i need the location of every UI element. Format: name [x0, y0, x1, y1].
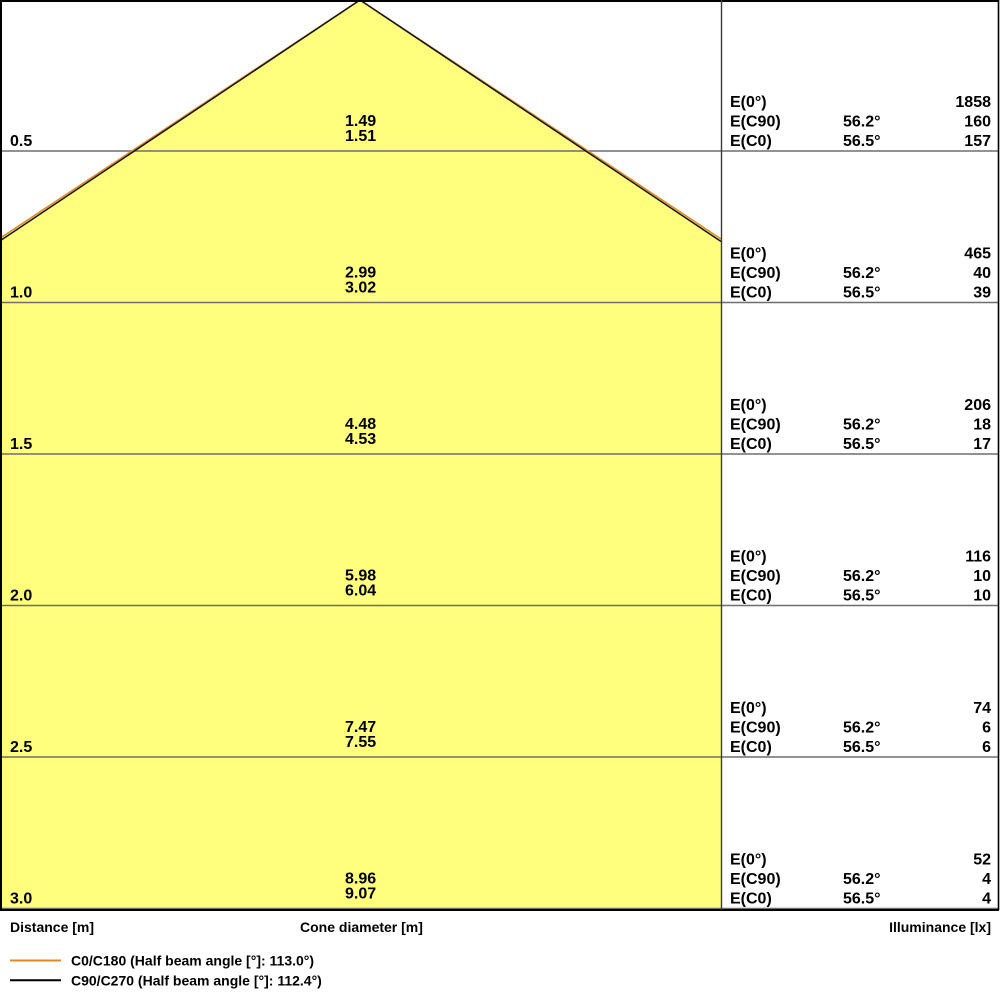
svg-text:6: 6 — [982, 739, 991, 756]
svg-text:56.2°: 56.2° — [843, 265, 881, 282]
svg-text:E(0°): E(0°) — [730, 246, 767, 263]
svg-text:E(C90): E(C90) — [730, 871, 781, 888]
svg-text:E(0°): E(0°) — [730, 549, 767, 566]
svg-text:18: 18 — [973, 417, 991, 434]
svg-text:3.02: 3.02 — [345, 280, 376, 297]
svg-text:6.04: 6.04 — [345, 583, 376, 600]
svg-text:74: 74 — [973, 700, 991, 717]
svg-text:39: 39 — [973, 285, 991, 302]
svg-text:E(C0): E(C0) — [730, 891, 772, 908]
svg-text:E(C90): E(C90) — [730, 114, 781, 131]
svg-text:4: 4 — [982, 871, 991, 888]
svg-text:56.5°: 56.5° — [843, 436, 881, 453]
svg-text:56.5°: 56.5° — [843, 285, 881, 302]
svg-text:56.5°: 56.5° — [843, 739, 881, 756]
svg-text:56.2°: 56.2° — [843, 871, 881, 888]
svg-text:10: 10 — [973, 588, 991, 605]
svg-text:C90/C270 (Half beam angle [°]:: C90/C270 (Half beam angle [°]: 112.4°) — [71, 972, 322, 988]
svg-text:E(0°): E(0°) — [730, 852, 767, 869]
svg-text:56.2°: 56.2° — [843, 568, 881, 585]
svg-text:E(C90): E(C90) — [730, 265, 781, 282]
svg-text:1.0: 1.0 — [10, 285, 32, 302]
svg-text:6: 6 — [982, 720, 991, 737]
svg-text:56.5°: 56.5° — [843, 588, 881, 605]
svg-text:56.5°: 56.5° — [843, 133, 881, 150]
svg-text:157: 157 — [964, 133, 991, 150]
svg-text:E(0°): E(0°) — [730, 397, 767, 414]
svg-text:7.55: 7.55 — [345, 734, 376, 751]
svg-text:4.53: 4.53 — [345, 431, 376, 448]
svg-text:Distance [m]: Distance [m] — [10, 919, 94, 935]
svg-text:C0/C180 (Half beam angle [°]:: C0/C180 (Half beam angle [°]: 113.0°) — [71, 953, 314, 969]
svg-text:Cone diameter [m]: Cone diameter [m] — [300, 919, 423, 935]
svg-text:52: 52 — [973, 852, 991, 869]
svg-text:E(C90): E(C90) — [730, 417, 781, 434]
svg-text:E(C90): E(C90) — [730, 568, 781, 585]
svg-text:9.07: 9.07 — [345, 886, 376, 903]
svg-text:116: 116 — [965, 549, 991, 566]
svg-text:3.0: 3.0 — [10, 891, 32, 908]
svg-text:E(C0): E(C0) — [730, 285, 772, 302]
svg-text:Illuminance [lx]: Illuminance [lx] — [889, 919, 991, 935]
svg-text:E(0°): E(0°) — [730, 94, 767, 111]
svg-text:206: 206 — [964, 397, 991, 414]
svg-text:17: 17 — [973, 436, 991, 453]
svg-text:2.0: 2.0 — [10, 588, 32, 605]
svg-text:4: 4 — [982, 891, 991, 908]
svg-text:1.51: 1.51 — [345, 128, 376, 145]
svg-text:2.5: 2.5 — [10, 739, 32, 756]
svg-text:40: 40 — [973, 265, 991, 282]
svg-text:0.5: 0.5 — [10, 133, 32, 150]
svg-text:E(C0): E(C0) — [730, 739, 772, 756]
svg-text:1.5: 1.5 — [10, 436, 32, 453]
svg-text:465: 465 — [964, 246, 991, 263]
svg-text:E(0°): E(0°) — [730, 700, 767, 717]
svg-text:1858: 1858 — [955, 94, 991, 111]
svg-text:56.5°: 56.5° — [843, 891, 881, 908]
svg-text:10: 10 — [973, 568, 991, 585]
svg-text:E(C0): E(C0) — [730, 436, 772, 453]
svg-text:56.2°: 56.2° — [843, 720, 881, 737]
svg-text:56.2°: 56.2° — [843, 417, 881, 434]
svg-text:E(C0): E(C0) — [730, 588, 772, 605]
svg-text:160: 160 — [964, 114, 991, 131]
svg-text:E(C0): E(C0) — [730, 133, 772, 150]
svg-text:E(C90): E(C90) — [730, 720, 781, 737]
svg-text:56.2°: 56.2° — [843, 114, 881, 131]
